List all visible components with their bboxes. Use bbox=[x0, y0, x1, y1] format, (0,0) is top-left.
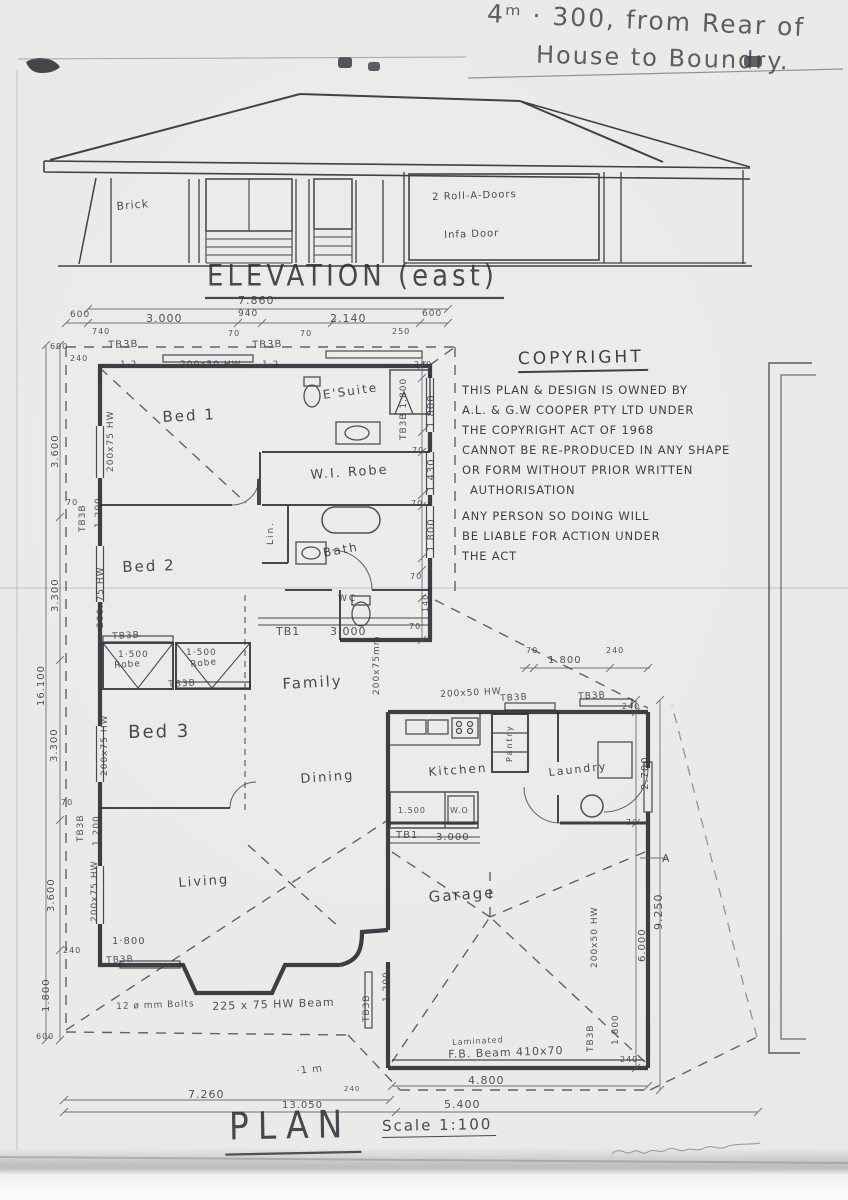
room-label: Bed 2 bbox=[122, 556, 176, 576]
dim-label: 240 bbox=[606, 646, 624, 655]
dim-label: 1·2 bbox=[262, 360, 279, 370]
dim-label: 12 ø mm Bolts bbox=[116, 999, 195, 1012]
dim-label: 3.300 bbox=[49, 728, 60, 762]
dim-label: TB3B bbox=[362, 994, 372, 1022]
dim-label: 70 bbox=[526, 646, 538, 655]
dim-label: 16.100 bbox=[36, 665, 47, 706]
dim-label: 7.260 bbox=[188, 1088, 225, 1101]
dim-label: 70 bbox=[300, 329, 312, 338]
dim-label: TB1 bbox=[276, 625, 300, 638]
dim-label: 3.600 bbox=[50, 434, 61, 468]
dim-label: 225 x 75 HW Beam bbox=[212, 996, 335, 1013]
room-label: Garage bbox=[428, 883, 496, 906]
dim-label: 600 bbox=[50, 342, 68, 351]
dim-label: TB3B bbox=[112, 631, 140, 642]
dim-label: 2.700 bbox=[640, 756, 651, 790]
dim-label: 250 bbox=[392, 327, 410, 336]
room-label: Living bbox=[178, 872, 230, 890]
elev-label: Brick bbox=[116, 197, 150, 213]
dim-label: 1·500 bbox=[186, 648, 217, 658]
dim-label: 600 bbox=[70, 310, 90, 320]
dim-label: TB3B bbox=[586, 1024, 596, 1052]
dim-label: TB3B bbox=[168, 679, 196, 690]
dim-label: TB3B bbox=[108, 339, 139, 351]
dim-label: TB3B 1.800 bbox=[399, 378, 409, 440]
dim-label: 240 bbox=[622, 702, 640, 711]
room-label: Lin. bbox=[266, 521, 276, 545]
dim-label: 1·800 bbox=[112, 936, 146, 947]
scanned-house-plan-page: 4ᵐ · 300, from Rear of House to Boundry.… bbox=[0, 0, 848, 1200]
dim-label: 1.800 bbox=[548, 655, 582, 666]
dim-label: Robe bbox=[114, 659, 141, 671]
dim-label: TB3B bbox=[78, 504, 88, 532]
dim-label: TB3B bbox=[500, 693, 528, 704]
room-label: Bed 1 bbox=[162, 405, 216, 426]
dim-label: 600 bbox=[36, 1032, 54, 1041]
dim-label: 70 bbox=[228, 329, 240, 338]
dim-label: 70 bbox=[409, 622, 421, 631]
dim-label: 3.300 bbox=[50, 578, 61, 612]
room-label: W.I. Robe bbox=[310, 463, 389, 483]
dim-label: 1.800 bbox=[426, 518, 437, 552]
dim-label: 70 bbox=[626, 818, 638, 827]
dim-label: 200x75 HW bbox=[96, 567, 106, 628]
room-label: Bed 3 bbox=[128, 721, 190, 743]
dim-label: 70 bbox=[61, 798, 73, 807]
room-label: Bath bbox=[322, 540, 360, 560]
dim-label: 1.500 bbox=[398, 806, 426, 815]
dim-label: 1·500 bbox=[118, 650, 149, 660]
dim-label: 2.140 bbox=[330, 312, 367, 325]
dim-label: A bbox=[662, 852, 671, 865]
dim-label: 240 bbox=[414, 360, 432, 369]
dim-label: 200x75 HW bbox=[106, 411, 116, 472]
dim-label: 1.200 bbox=[382, 971, 392, 1002]
dim-label: 240 bbox=[620, 1055, 638, 1064]
dim-label: 70 bbox=[412, 446, 424, 455]
room-label: Pantry bbox=[505, 724, 514, 762]
room-label: Dining bbox=[300, 768, 355, 787]
dim-label: 200x75mm bbox=[372, 636, 382, 696]
dim-label: 600 bbox=[422, 309, 442, 319]
dim-label: 200x50 HW bbox=[440, 687, 502, 700]
room-label: Laundry bbox=[548, 760, 608, 779]
dim-label: 7.860 bbox=[238, 294, 275, 307]
dim-label: 1.200 bbox=[94, 497, 104, 528]
dim-label: 940 bbox=[238, 309, 258, 319]
plan-labels-layer: Bed 1Bed 2Bed 3E'SuiteW.I. RobeBathLin.W… bbox=[0, 0, 848, 1200]
dim-label: W.O bbox=[450, 806, 469, 815]
dim-label: 1.430 bbox=[426, 458, 437, 492]
dim-label: Robe bbox=[190, 657, 218, 670]
room-label: E'Suite bbox=[322, 380, 379, 402]
dim-label: F.B. Beam 410x70 bbox=[448, 1044, 564, 1061]
dim-label: TB3B bbox=[106, 955, 134, 966]
dim-label: ·1 m bbox=[296, 1063, 323, 1077]
dim-label: 9.250 bbox=[652, 894, 665, 931]
room-label: WC bbox=[338, 594, 357, 604]
dim-label: 3.000 bbox=[146, 312, 183, 325]
dim-label: 3.600 bbox=[46, 878, 57, 912]
room-label: Kitchen bbox=[428, 761, 488, 779]
dim-label: TB1 bbox=[396, 830, 418, 841]
dim-label: 1.200 bbox=[92, 815, 102, 846]
dim-label: 140 bbox=[421, 594, 430, 612]
scan-bottom-shadow bbox=[0, 1148, 848, 1200]
dim-label: 240 bbox=[70, 354, 88, 363]
dim-label: 1.800 bbox=[41, 978, 52, 1012]
dim-label: 200x50 HW bbox=[180, 360, 241, 370]
dim-label: 200x50 HW bbox=[590, 907, 600, 968]
dim-label: Laminated bbox=[452, 1035, 504, 1047]
dim-label: TB3B bbox=[252, 339, 283, 351]
dim-label: 740 bbox=[92, 327, 110, 336]
room-label: Family bbox=[282, 672, 343, 693]
dim-label: 4.800 bbox=[468, 1074, 505, 1087]
dim-label: 13.050 bbox=[282, 1100, 323, 1111]
dim-label: 70 bbox=[66, 498, 78, 507]
elev-label: 2 Roll-A-Doors bbox=[432, 189, 517, 203]
dim-label: TB3B bbox=[76, 814, 86, 842]
dim-label: 3.000 bbox=[330, 625, 367, 638]
elev-label: Infa Door bbox=[444, 228, 500, 241]
dim-label: 240 bbox=[344, 1085, 360, 1093]
dim-label: 70 bbox=[410, 572, 422, 581]
dim-label: 1.800 bbox=[611, 1014, 621, 1045]
dim-label: 6.000 bbox=[637, 928, 648, 962]
dim-label: 1·2 bbox=[120, 360, 137, 370]
dim-label: 3.000 bbox=[436, 832, 470, 843]
dim-label: 1.800 bbox=[426, 394, 437, 428]
dim-label: 5.400 bbox=[444, 1098, 481, 1111]
dim-label: 200x75 HW bbox=[90, 861, 100, 922]
dim-label: 240 bbox=[63, 946, 81, 955]
dim-label: 70 bbox=[411, 499, 423, 508]
dim-label: TB3B bbox=[578, 691, 606, 702]
dim-label: 200x75 HW bbox=[100, 715, 110, 776]
